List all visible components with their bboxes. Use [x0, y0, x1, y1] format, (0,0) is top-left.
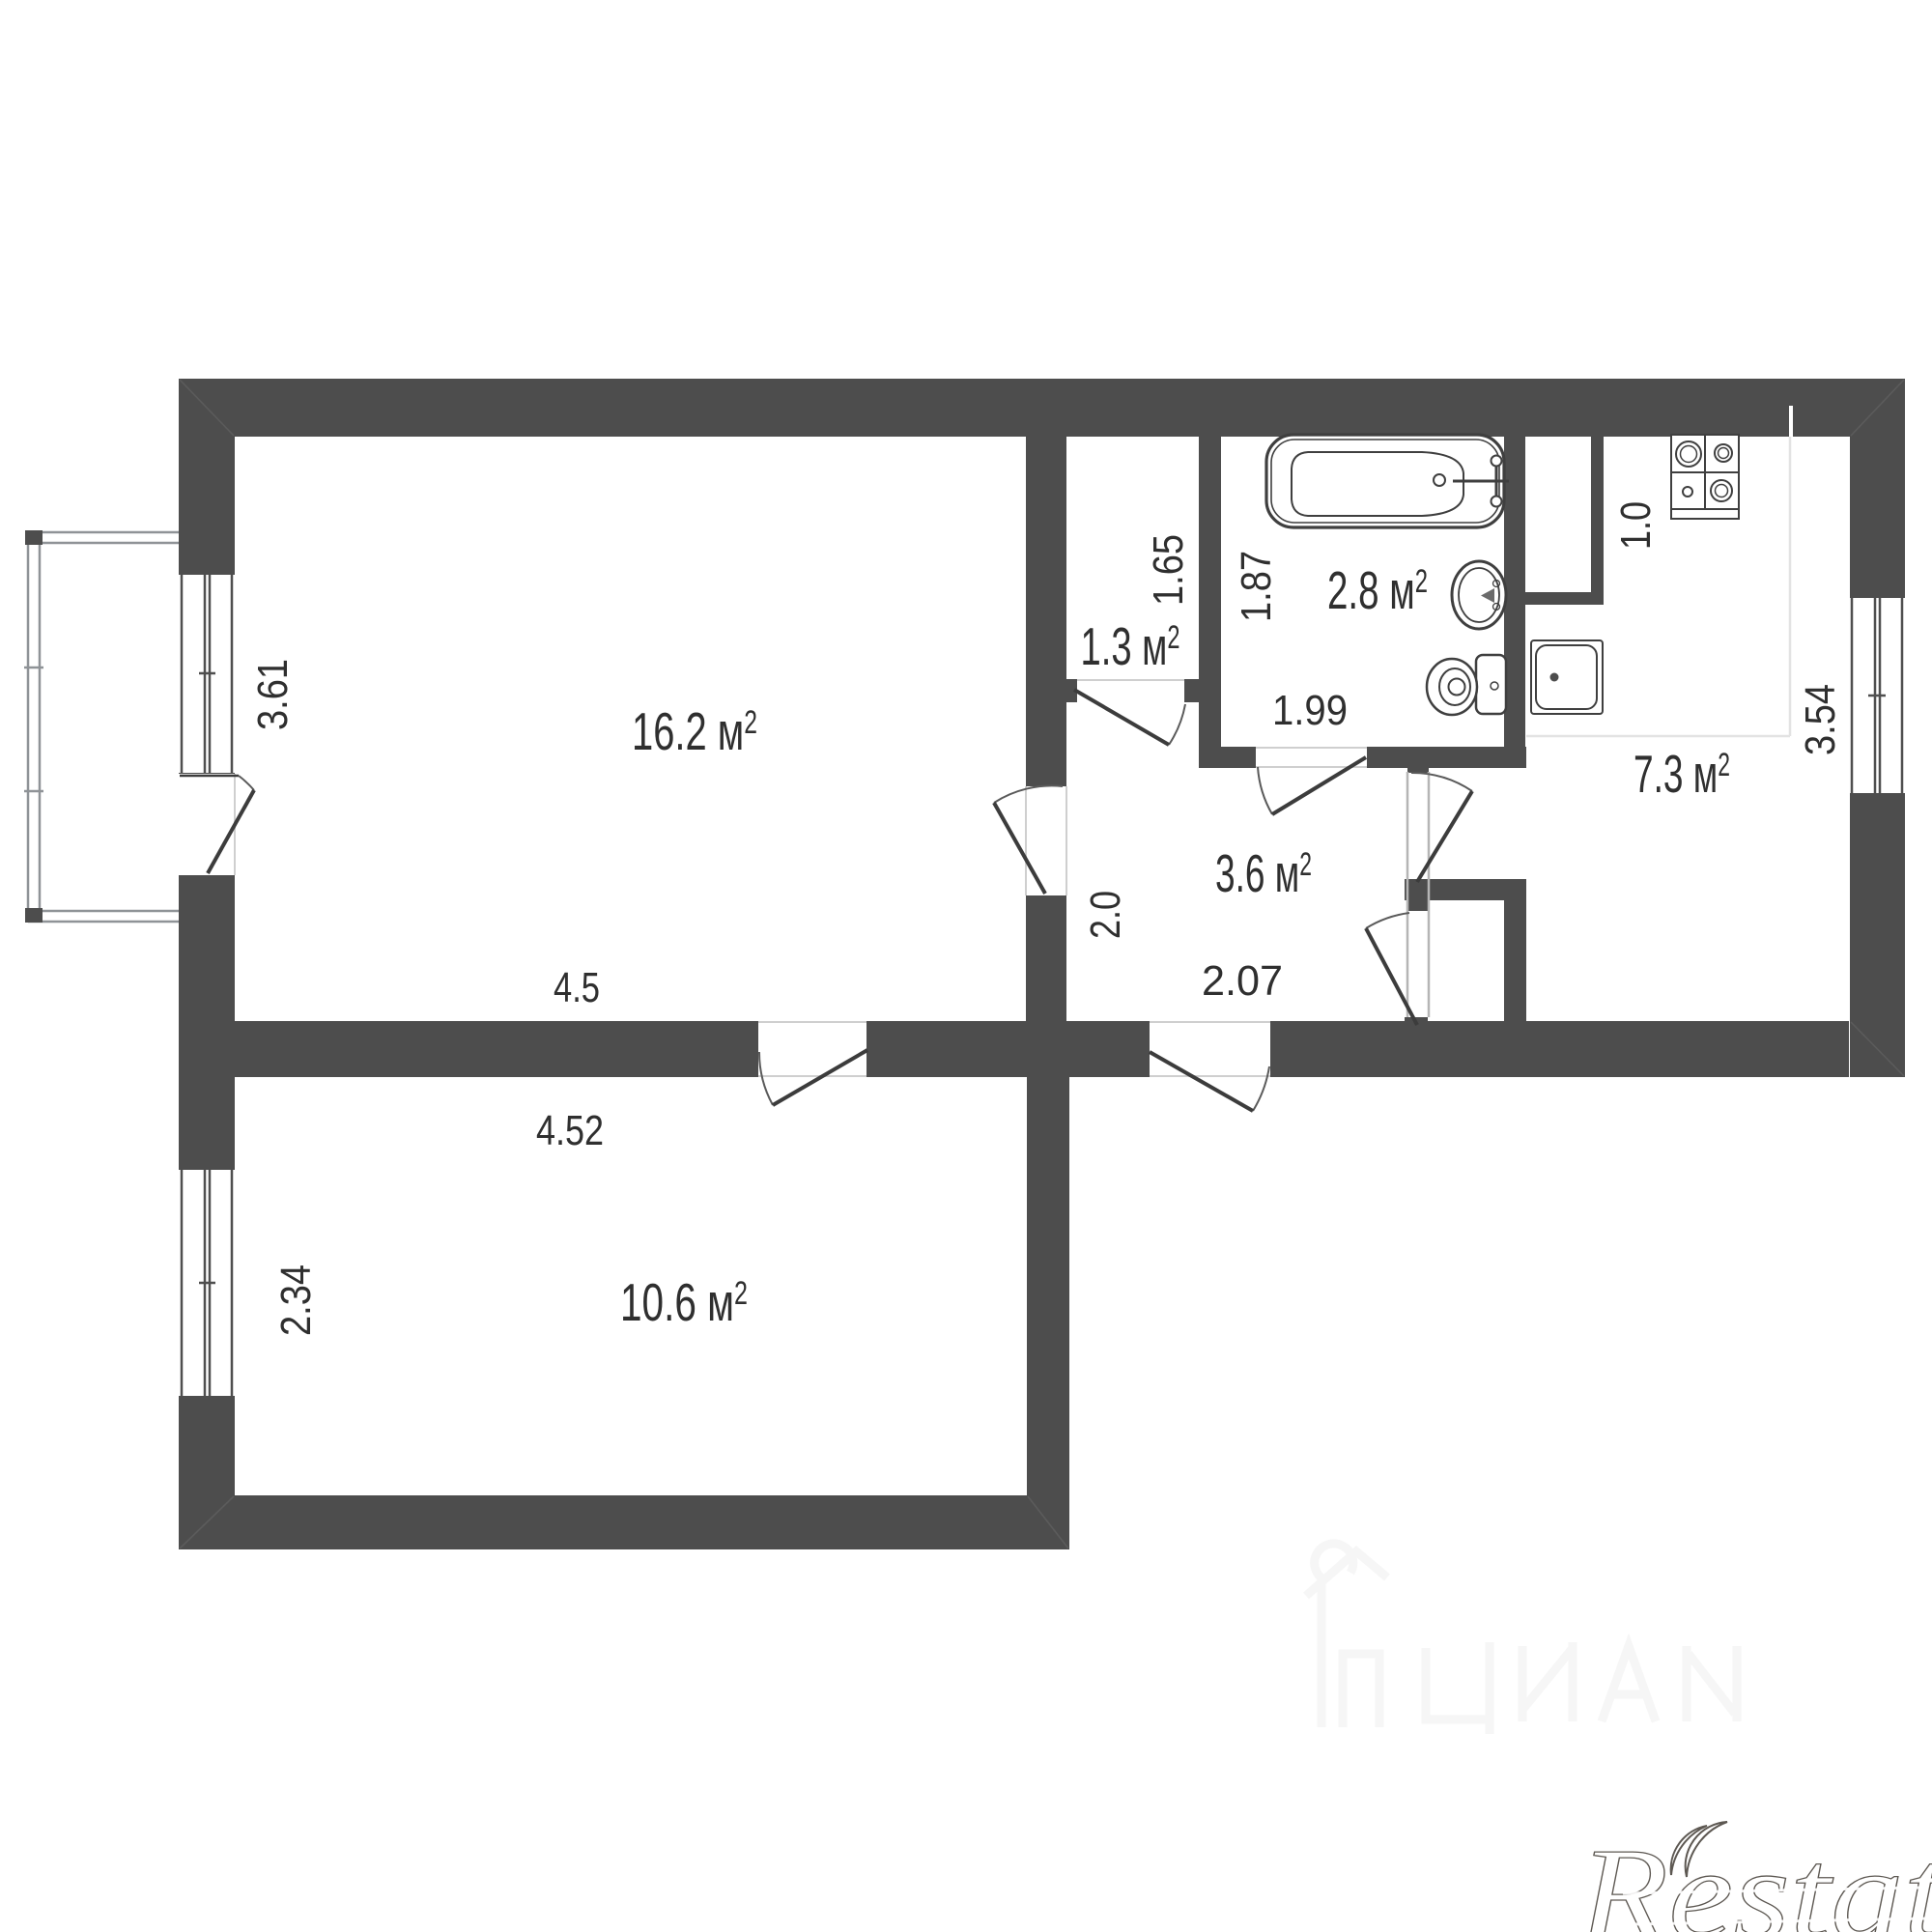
svg-text:7.3 м2: 7.3 м2	[1634, 744, 1730, 804]
svg-text:1.87: 1.87	[1233, 551, 1280, 622]
svg-text:4.5: 4.5	[554, 964, 600, 1011]
svg-text:2.0: 2.0	[1082, 891, 1129, 939]
svg-text:10.6 м2: 10.6 м2	[620, 1272, 748, 1332]
svg-text:3.6 м2: 3.6 м2	[1215, 843, 1312, 903]
svg-text:16.2 м2: 16.2 м2	[632, 701, 757, 761]
svg-text:1.0: 1.0	[1612, 501, 1660, 550]
svg-text:2.34: 2.34	[272, 1264, 320, 1336]
svg-text:1.3 м2: 1.3 м2	[1081, 616, 1180, 676]
svg-text:1.99: 1.99	[1272, 687, 1348, 734]
svg-text:Restate: Restate	[1578, 1822, 1932, 1932]
svg-text:3.61: 3.61	[249, 659, 297, 730]
svg-text:2.07: 2.07	[1202, 957, 1283, 1005]
svg-text:3.54: 3.54	[1797, 684, 1844, 755]
svg-text:2.8 м2: 2.8 м2	[1327, 560, 1428, 620]
svg-text:4.52: 4.52	[536, 1107, 604, 1154]
svg-text:1.65: 1.65	[1145, 534, 1192, 606]
